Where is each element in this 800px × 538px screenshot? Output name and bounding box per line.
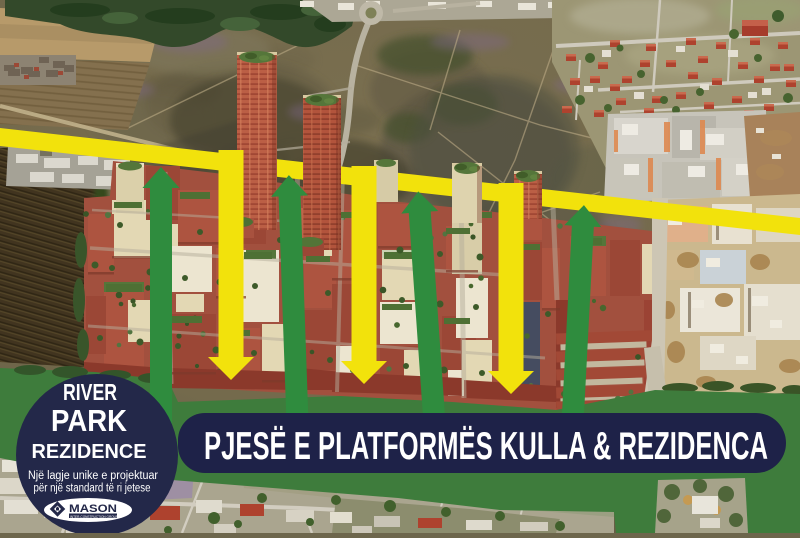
svg-text:INTER-CONSTRUCTION GROUP: INTER-CONSTRUCTION GROUP [70, 515, 119, 519]
svg-text:REZIDENCE: REZIDENCE [32, 441, 147, 463]
svg-text:për një standard të ri jetese: për një standard të ri jetese [34, 483, 151, 495]
svg-text:PARK: PARK [51, 403, 128, 438]
svg-text:PJESË E PLATFORMËS KULLA & REZ: PJESË E PLATFORMËS KULLA & REZIDENCA [204, 425, 768, 468]
svg-text:MASON: MASON [69, 503, 117, 515]
svg-text:Një lagje unike e projektuar: Një lagje unike e projektuar [28, 470, 158, 482]
svg-text:RIVER: RIVER [63, 379, 117, 405]
